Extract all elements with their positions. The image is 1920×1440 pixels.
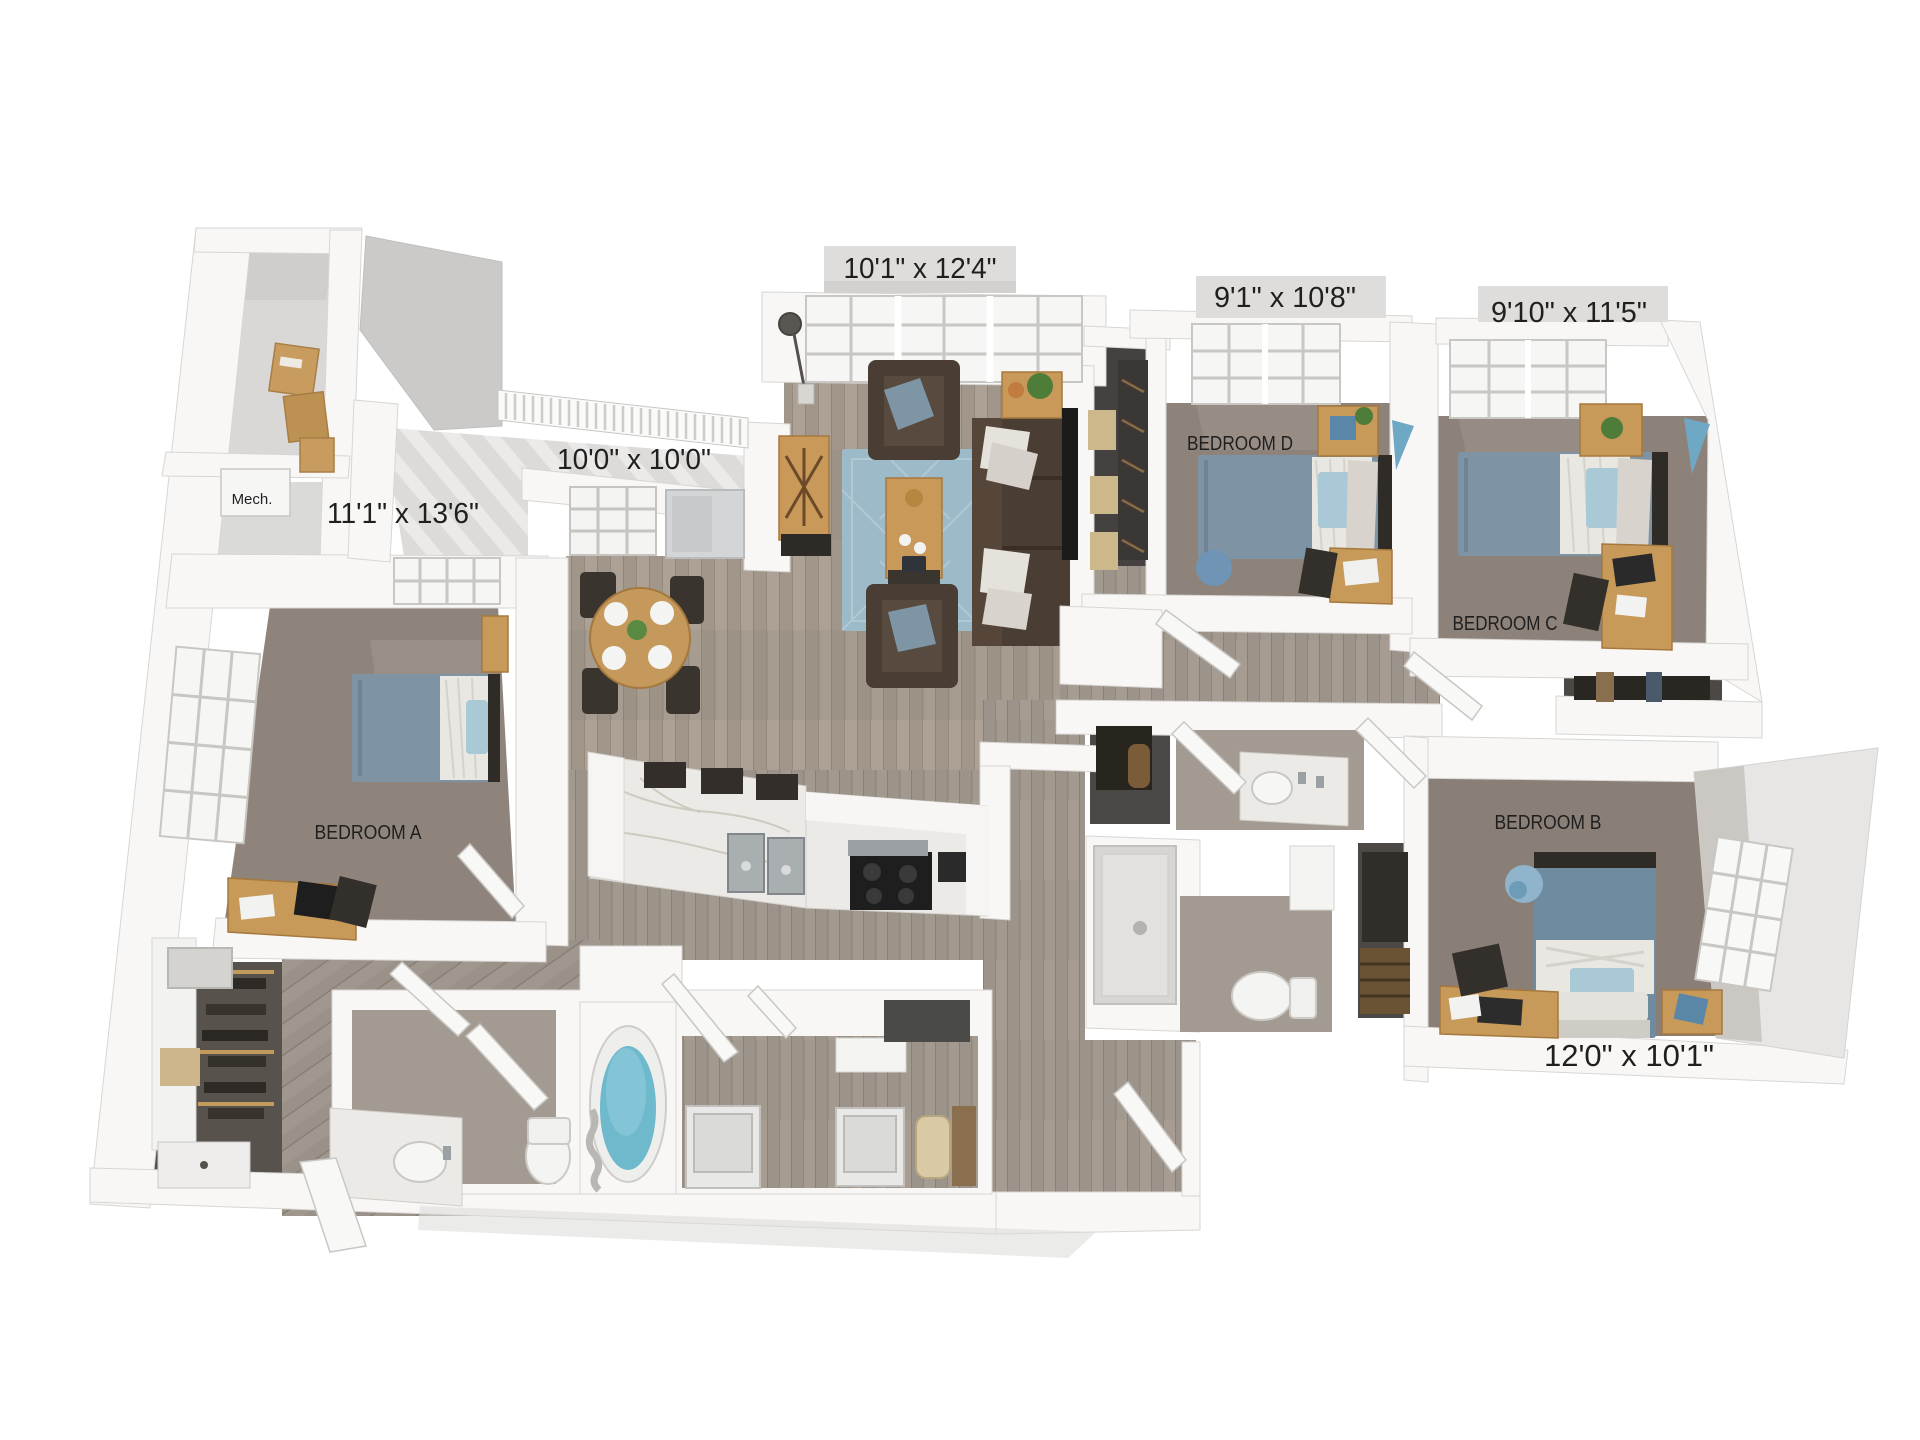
svg-text:9'1" x 10'8": 9'1" x 10'8" [1214, 282, 1356, 314]
svg-text:BEDROOM D: BEDROOM D [1187, 433, 1293, 455]
svg-text:BEDROOM A: BEDROOM A [315, 822, 423, 844]
svg-text:BEDROOM B: BEDROOM B [1495, 812, 1602, 834]
svg-text:12'0" x 10'1": 12'0" x 10'1" [1544, 1038, 1714, 1073]
svg-text:10'0" x 10'0": 10'0" x 10'0" [557, 444, 711, 476]
svg-text:Mech.: Mech. [232, 491, 273, 508]
svg-text:11'1" x 13'6": 11'1" x 13'6" [327, 498, 479, 530]
svg-text:10'1" x 12'4": 10'1" x 12'4" [844, 253, 997, 285]
svg-text:BEDROOM C: BEDROOM C [1453, 613, 1558, 635]
svg-text:9'10" x 11'5": 9'10" x 11'5" [1491, 297, 1647, 329]
